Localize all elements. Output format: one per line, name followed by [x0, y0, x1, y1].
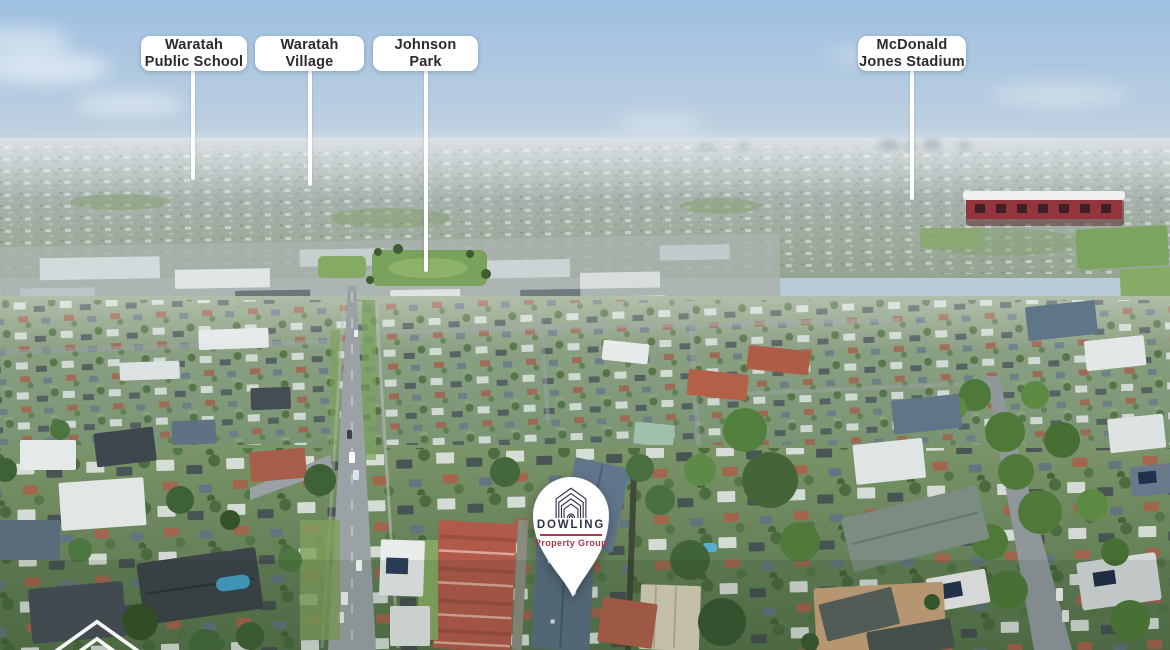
brand-name: DOWLING — [537, 519, 605, 531]
callout-line-waratah-village — [308, 69, 312, 186]
brand-divider — [540, 534, 602, 536]
callout-line1: McDonald — [877, 37, 948, 54]
pin-content: DOWLING Property Group — [529, 484, 613, 548]
callout-line-waratah-public-school — [191, 69, 195, 180]
callout-line1: Johnson — [395, 37, 457, 54]
callout-line2: Jones Stadium — [859, 54, 965, 71]
callout-line-johnson-park — [424, 69, 428, 272]
watermark-logo — [38, 608, 156, 650]
callout-waratah-village: Waratah Village — [255, 36, 364, 71]
callout-line2: Park — [409, 54, 441, 71]
callout-line2: Village — [286, 54, 334, 71]
nested-house-logo-icon — [553, 484, 589, 518]
callout-mcdonald-jones-stadium: McDonald Jones Stadium — [858, 36, 966, 71]
callout-waratah-public-school: Waratah Public School — [141, 36, 247, 71]
brand-tagline: Property Group — [535, 538, 607, 548]
callout-line1: Waratah — [165, 37, 223, 54]
callout-johnson-park: Johnson Park — [373, 36, 478, 71]
callout-line-mcdonald-jones-stadium — [910, 69, 914, 200]
property-pin: DOWLING Property Group — [516, 468, 631, 603]
aerial-photo: Waratah Public School Waratah Village Jo… — [0, 0, 1170, 650]
nested-house-logo-icon — [38, 608, 156, 650]
callout-line1: Waratah — [280, 37, 338, 54]
callout-line2: Public School — [145, 54, 243, 71]
